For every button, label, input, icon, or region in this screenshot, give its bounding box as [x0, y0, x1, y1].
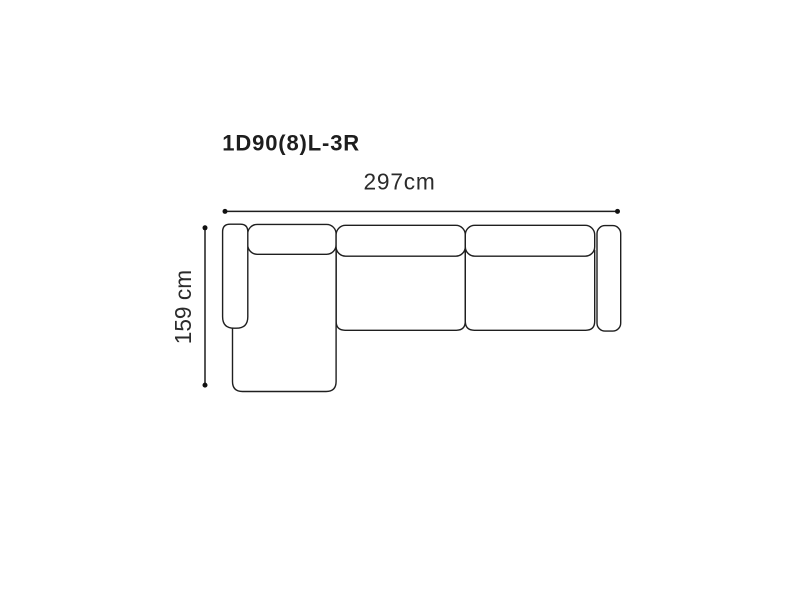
svg-text:297cm: 297cm [364, 169, 436, 195]
svg-text:1D90(8)L-3R: 1D90(8)L-3R [222, 131, 360, 156]
svg-text:159 cm: 159 cm [170, 270, 196, 344]
